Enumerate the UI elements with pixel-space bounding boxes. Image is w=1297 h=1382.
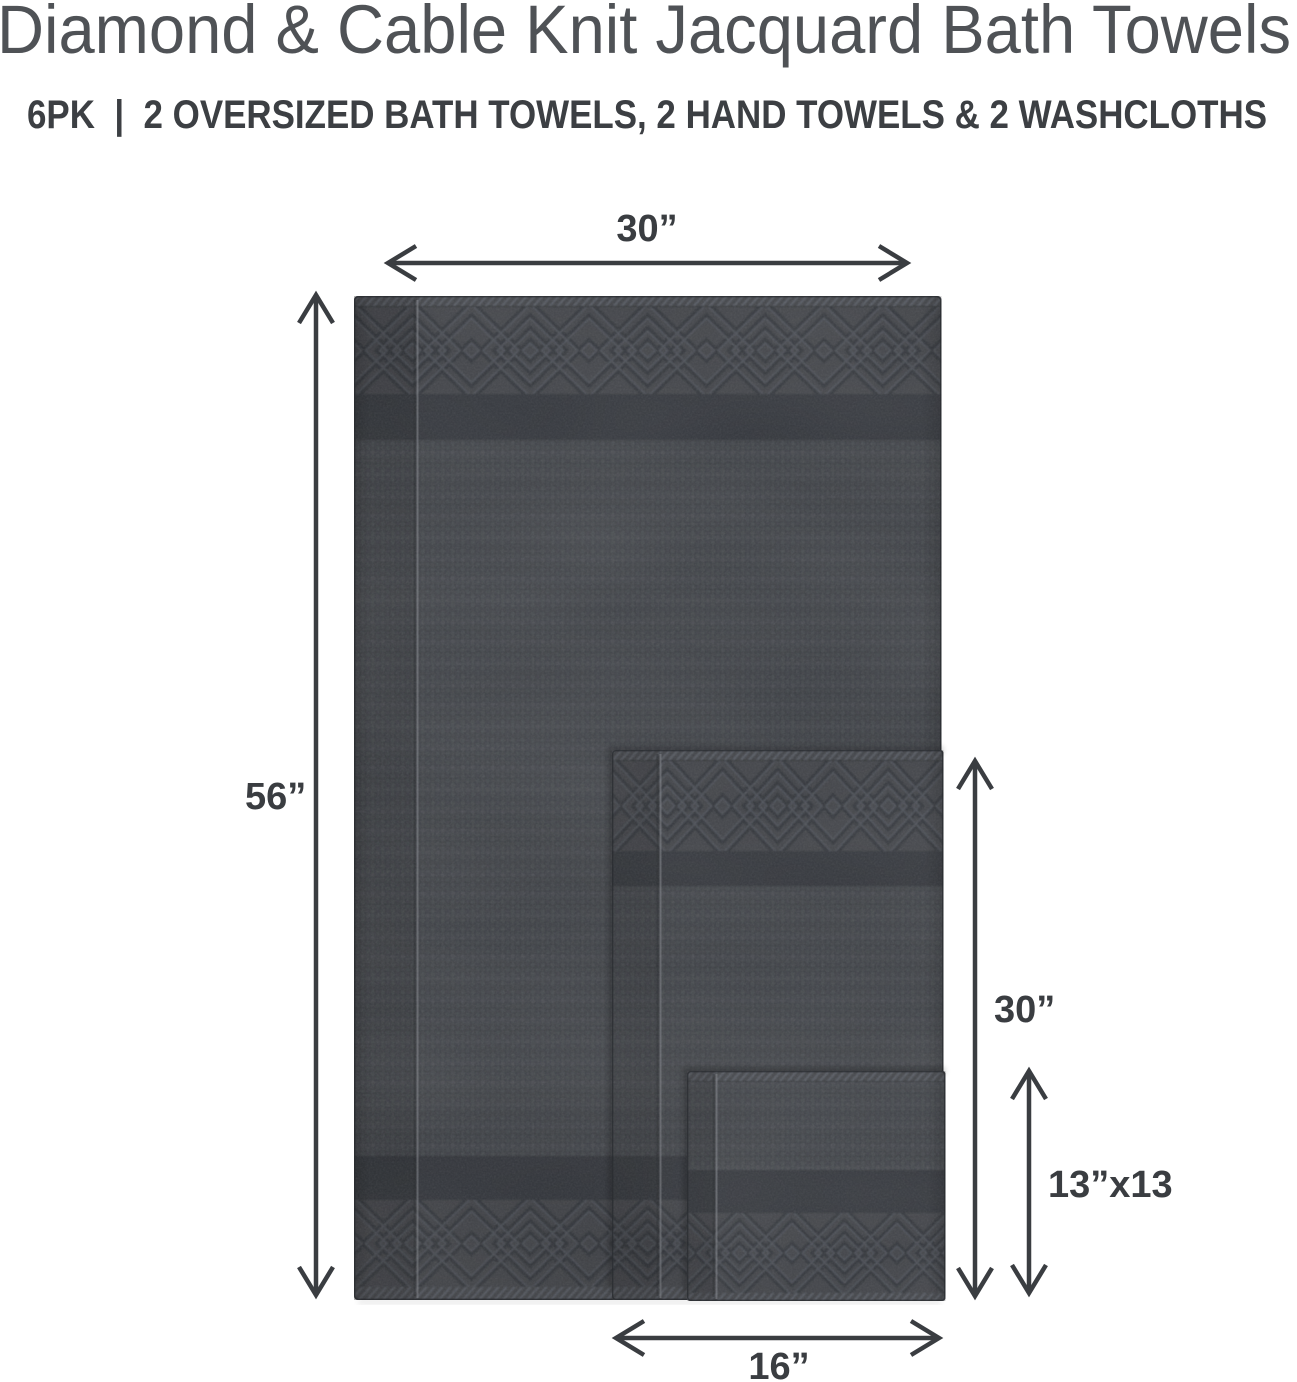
- svg-text:56”: 56”: [245, 776, 306, 818]
- svg-text:30”: 30”: [616, 208, 677, 250]
- svg-text:Diamond & Cable Knit Jacquard: Diamond & Cable Knit Jacquard Bath Towel…: [0, 0, 1291, 68]
- svg-text:6PK | 2 OVERSIZED BATH TOWEL: 6PK | 2 OVERSIZED BATH TOWELS, 2 HAND TO…: [27, 93, 1267, 137]
- svg-text:13”x13: 13”x13: [1048, 1164, 1173, 1206]
- svg-text:16”: 16”: [748, 1346, 809, 1382]
- svg-text:30”: 30”: [994, 989, 1055, 1031]
